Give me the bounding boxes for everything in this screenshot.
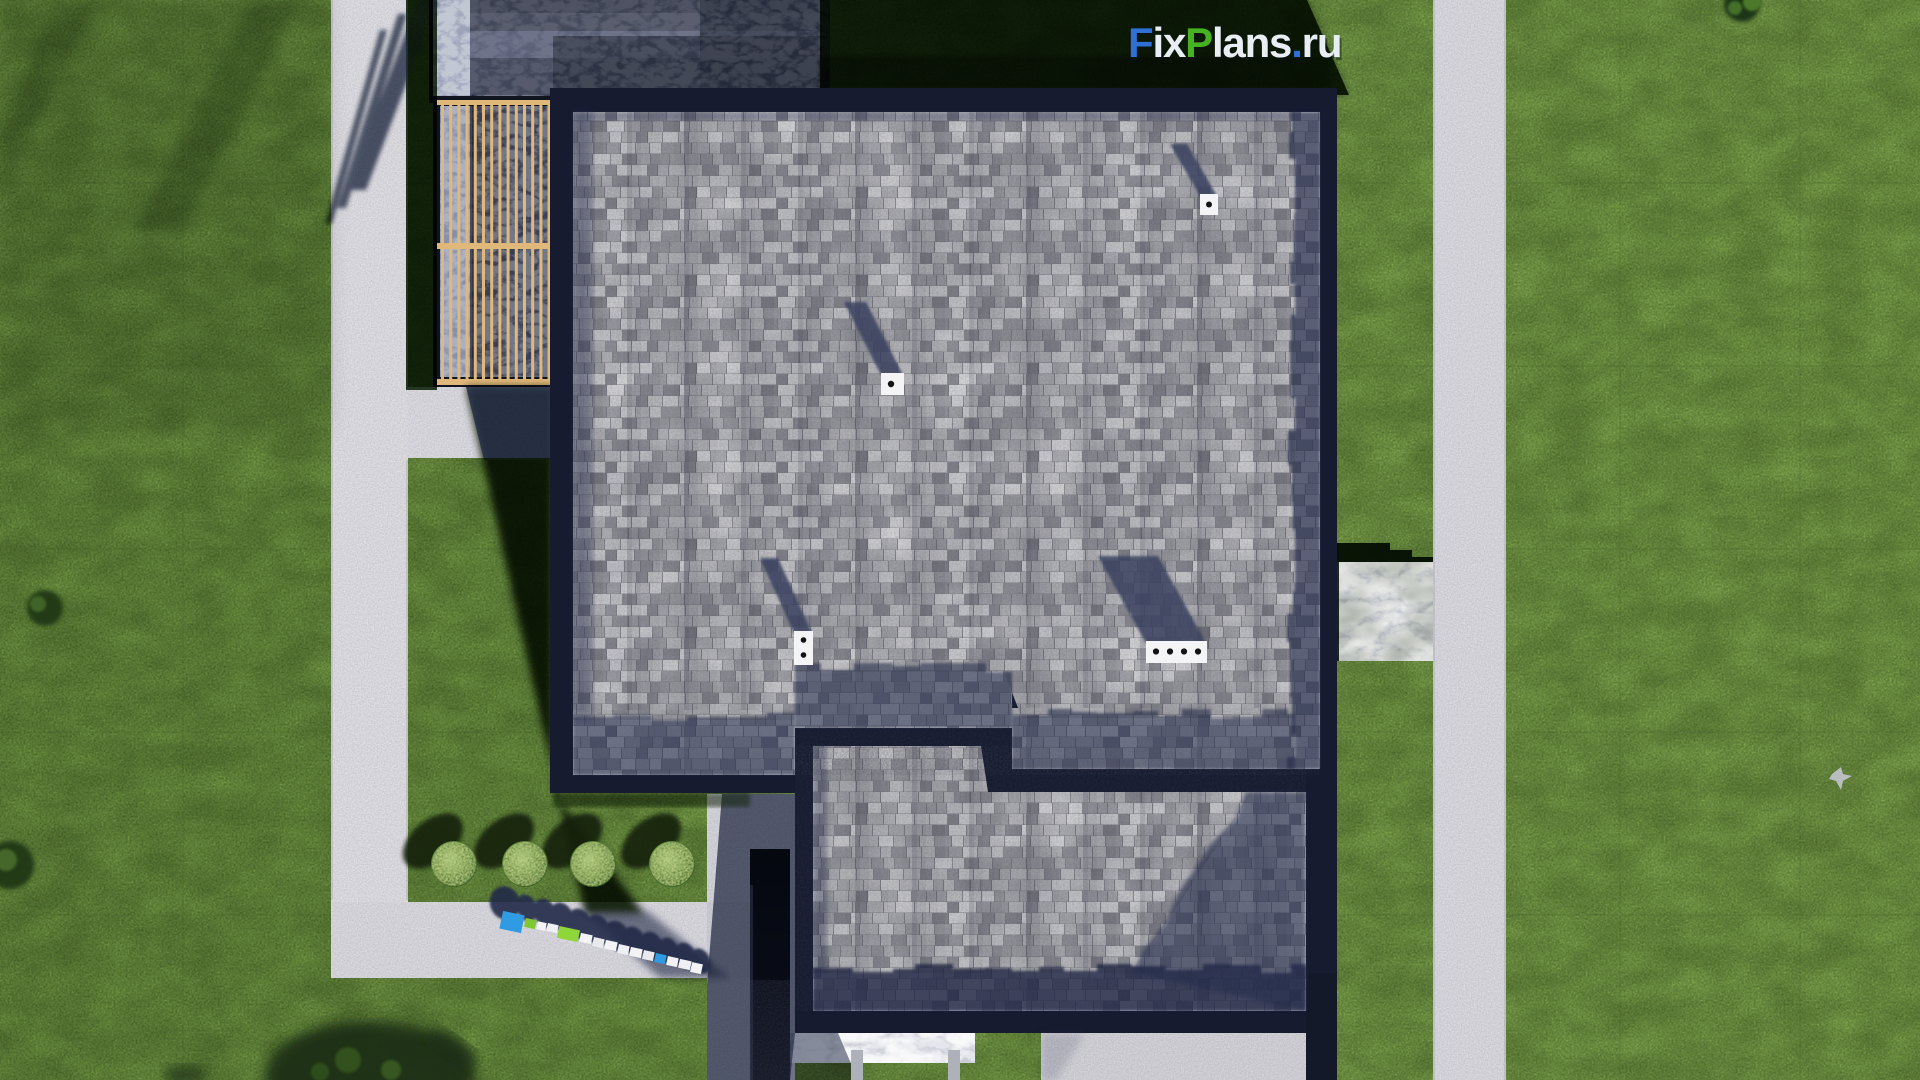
svg-text:FixPlans.ru: FixPlans.ru bbox=[1128, 19, 1341, 66]
